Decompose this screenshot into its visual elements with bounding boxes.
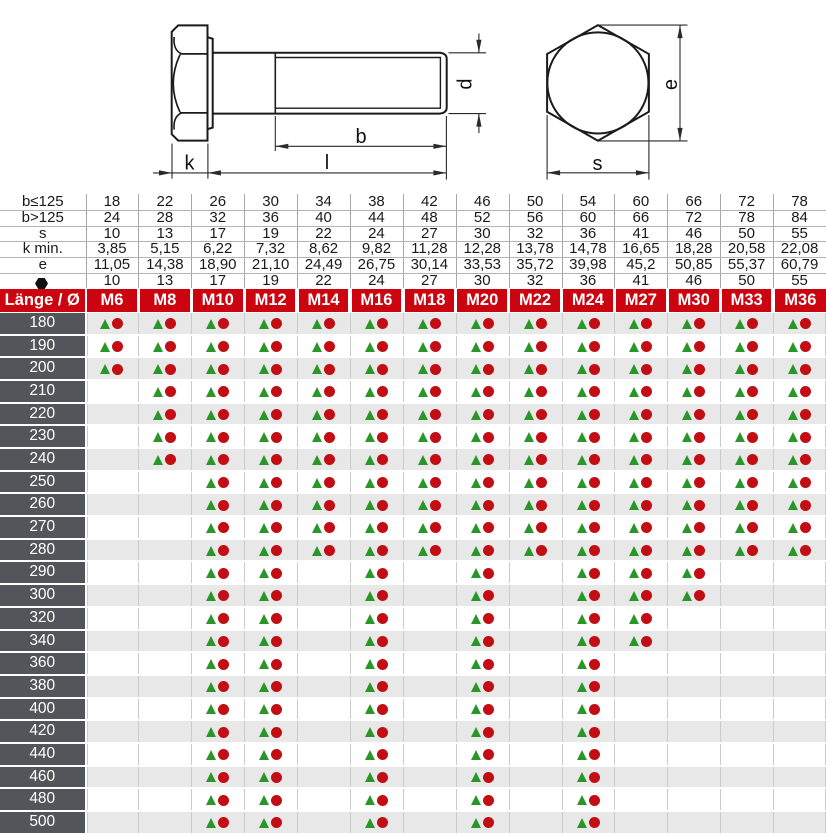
svg-text:b: b — [355, 126, 366, 148]
svg-text:k: k — [185, 153, 196, 175]
svg-text:e: e — [660, 79, 682, 90]
svg-text:s: s — [593, 153, 603, 175]
svg-text:d: d — [454, 78, 476, 89]
svg-text:l: l — [325, 152, 329, 174]
